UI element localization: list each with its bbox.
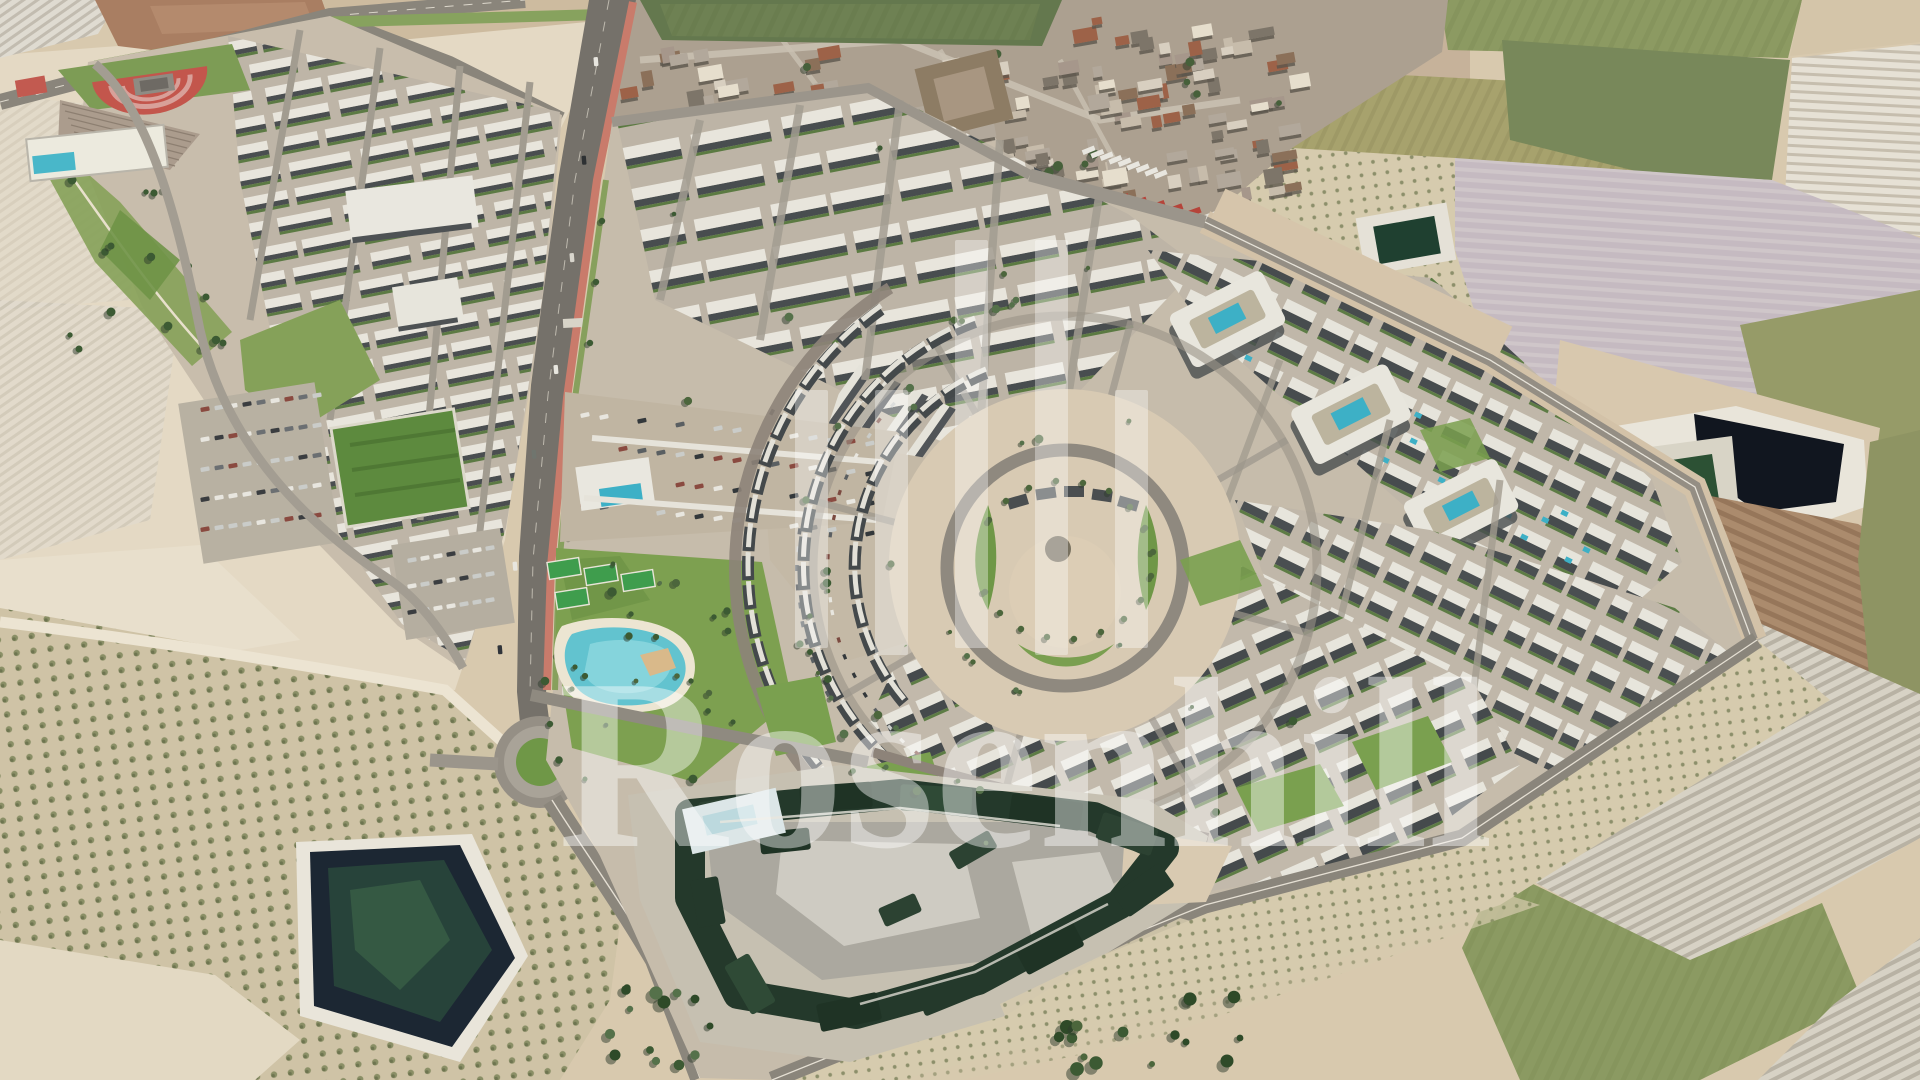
svg-text:Rosenhill: Rosenhill bbox=[558, 629, 1493, 899]
